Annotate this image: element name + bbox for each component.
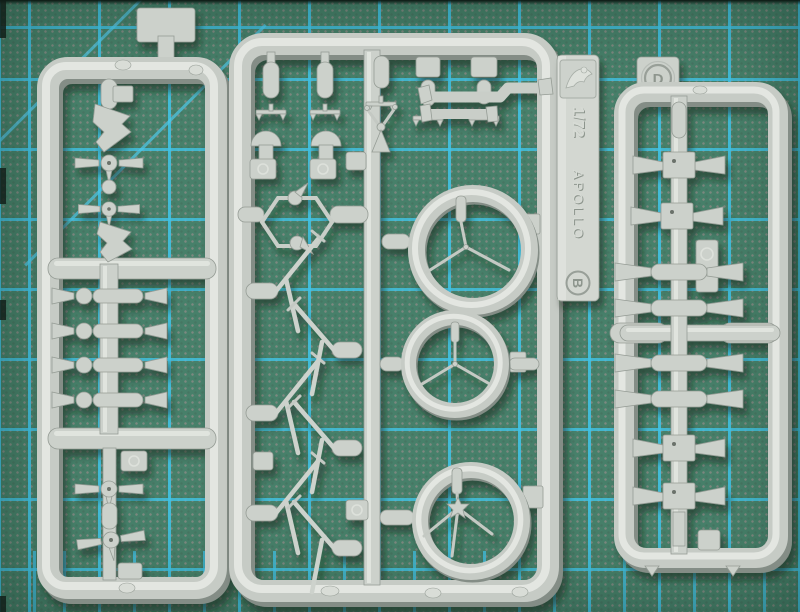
- tag-brand-text: APOLLO: [570, 169, 586, 240]
- letter-plate: [698, 530, 720, 550]
- right-sprue-cross-rail: [610, 323, 780, 343]
- spoked-ring-medium: [380, 316, 539, 413]
- spoked-ring-large: [382, 192, 540, 309]
- left-sprue: [46, 8, 220, 593]
- dome-part: [310, 131, 341, 179]
- sprues-artwork: 1/72 1/72 APOLLO APOLLO B D: [0, 0, 800, 612]
- photo-of-sprues-on-cutting-mat: 1/72 1/72 APOLLO APOLLO B D: [0, 0, 800, 612]
- thruster-row: [52, 357, 167, 373]
- twin-bell-nozzles: [615, 299, 743, 317]
- spoked-ring-star: [380, 468, 543, 575]
- sprue-gate: [673, 512, 685, 546]
- sensor-block: [633, 483, 725, 509]
- letter-plate: [118, 563, 142, 579]
- letter-plate: [346, 152, 366, 170]
- letter-plate: [113, 86, 133, 102]
- tag-scale-text: 1/72: [569, 106, 586, 137]
- sensor-block: [633, 152, 725, 178]
- landing-strut: [246, 353, 324, 453]
- letter-plate: [346, 500, 368, 520]
- twin-bell-nozzles: [615, 354, 743, 372]
- wedge-fairing: [97, 222, 132, 262]
- hex-frame-part: [238, 183, 368, 254]
- thruster-row: [52, 392, 167, 408]
- thruster-row: [52, 323, 167, 339]
- center-sprue: [238, 42, 553, 598]
- twin-bell-nozzles: [615, 390, 743, 408]
- sensor-block: [631, 203, 723, 229]
- landing-strut: [288, 298, 362, 394]
- bullet-fairing-chain: [310, 52, 340, 120]
- letter-plate: [253, 452, 273, 470]
- landing-strut: [288, 396, 362, 492]
- right-sprue: D: [610, 57, 782, 576]
- propeller: [78, 202, 139, 228]
- ball-joint: [102, 180, 116, 194]
- letter-plate: [121, 451, 147, 471]
- left-sprue-cross-rails: [48, 258, 216, 449]
- pill-part: [672, 102, 686, 138]
- tag-letter-b: B: [570, 278, 586, 288]
- scale-brand-tag: 1/72 1/72 APOLLO APOLLO B: [557, 55, 599, 301]
- sensor-block: [633, 435, 725, 461]
- thruster-row: [52, 288, 167, 304]
- wedge-fairing: [93, 104, 131, 152]
- brand-logo: [560, 60, 596, 98]
- twin-bell-nozzles: [615, 263, 743, 281]
